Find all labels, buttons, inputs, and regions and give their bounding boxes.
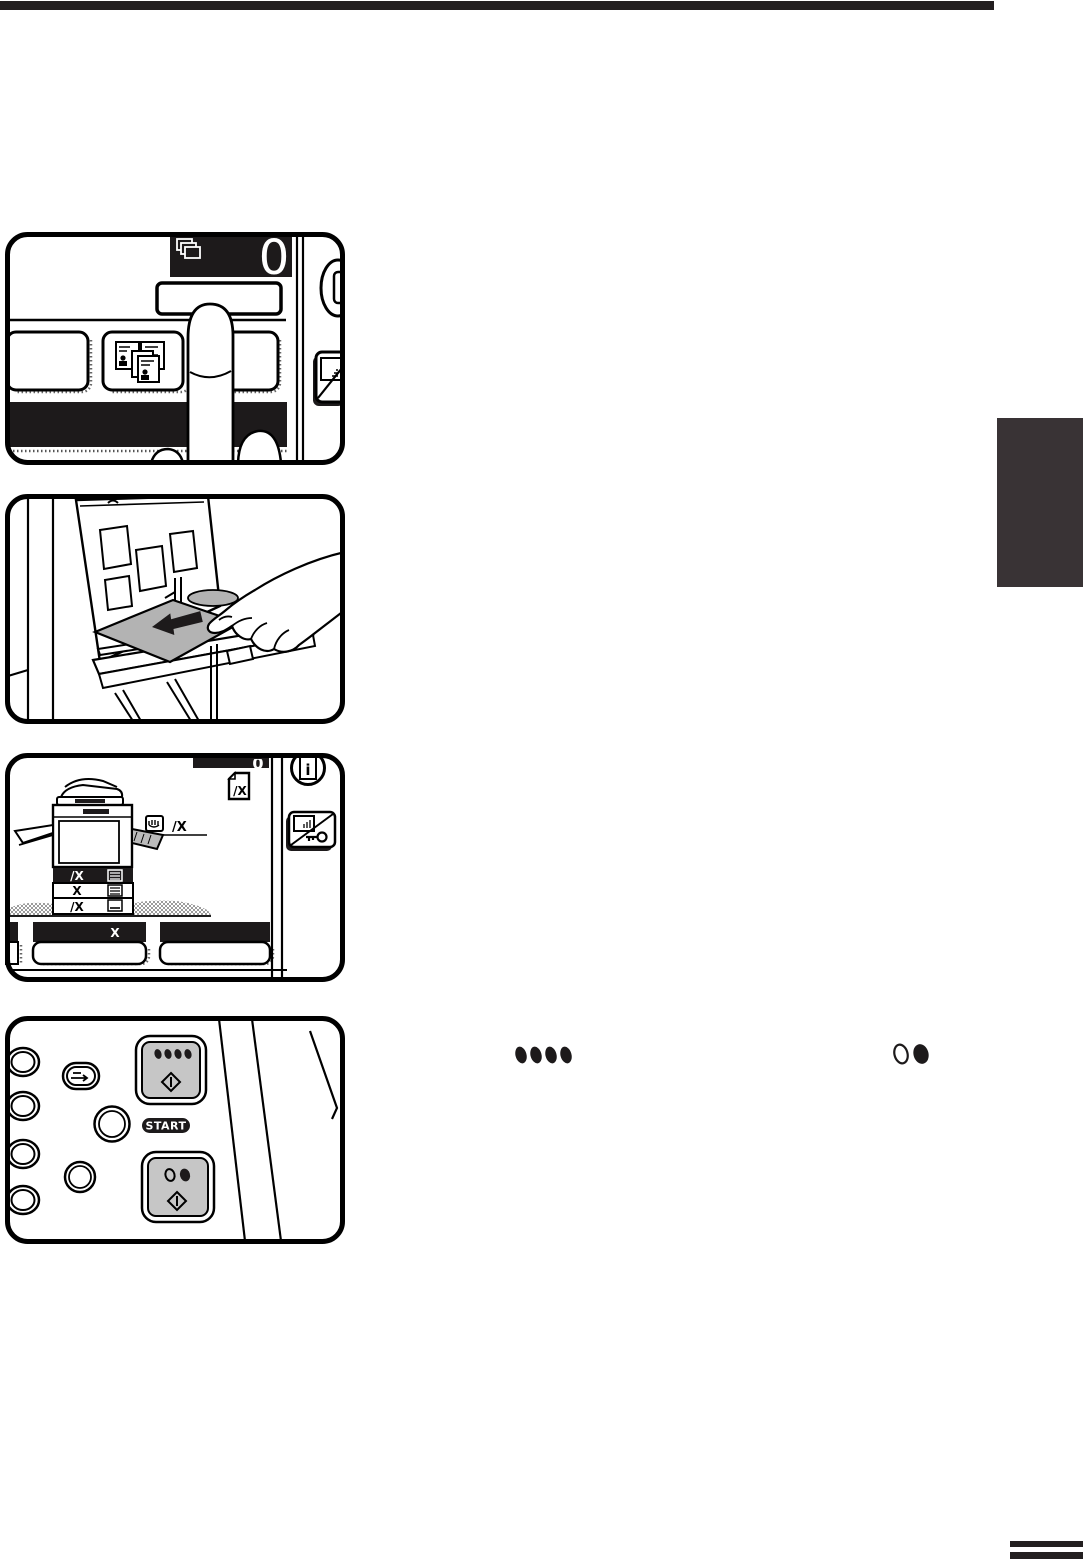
illustration-press-paper-select-key: 0 (5, 232, 345, 465)
bypass-size-label: /X (172, 820, 187, 835)
interrupt-key (63, 1063, 99, 1089)
halftone-left (7, 903, 53, 916)
bottom-key-label: X (110, 926, 120, 940)
illustration-start-keys: START (5, 1016, 345, 1244)
paper-size-icon: /X (229, 773, 249, 799)
paper-guide-roller (188, 590, 238, 606)
copy-count-value: 0 (259, 232, 290, 286)
press-key-graphic: 0 (5, 232, 345, 465)
touch-key-left (7, 332, 88, 390)
left-key-column (7, 1048, 39, 1214)
round-keys (65, 1107, 130, 1193)
start-badge-label: START (145, 1120, 186, 1133)
paper-size-icon-label: /X (233, 784, 247, 798)
start-key-bw (142, 1152, 214, 1222)
start-badge: START (142, 1118, 190, 1133)
tray-row-3: /X (53, 898, 133, 914)
illustration-insert-paper-bypass (5, 494, 345, 724)
illustration-tray-size-display: 0 /X /X (5, 753, 345, 982)
tray-display-graphic: 0 /X /X (5, 753, 345, 982)
header-rule (0, 1, 994, 10)
color-start-icon (509, 1040, 575, 1070)
chapter-edge-tab (997, 418, 1083, 587)
copier-graphic (15, 779, 163, 867)
tray-row-label: X (72, 884, 82, 898)
tray-row-2: X (53, 883, 133, 898)
info-icon-letter: i (305, 761, 310, 779)
bottom-key-right (160, 922, 273, 964)
copier-side-wall (8, 497, 53, 721)
copy-quantity-display: 0 (170, 232, 292, 286)
start-keys-graphic: START (5, 1016, 345, 1244)
bypass-feed-graphic (5, 494, 345, 724)
audit-key-icon (286, 812, 335, 851)
tray-row-label: /X (70, 869, 84, 883)
bottom-key-middle: X (33, 922, 149, 964)
halftone-right (133, 900, 211, 916)
tray-row-label: /X (70, 900, 84, 914)
start-key-color (136, 1036, 206, 1104)
page-footer-bar (1010, 1541, 1083, 1547)
console-edges (219, 1019, 337, 1241)
tray-row-1: /X (53, 868, 133, 883)
manual-page: 0 (0, 0, 1083, 1559)
bw-start-icon (886, 1038, 938, 1070)
page-footer-bar (1010, 1552, 1083, 1559)
